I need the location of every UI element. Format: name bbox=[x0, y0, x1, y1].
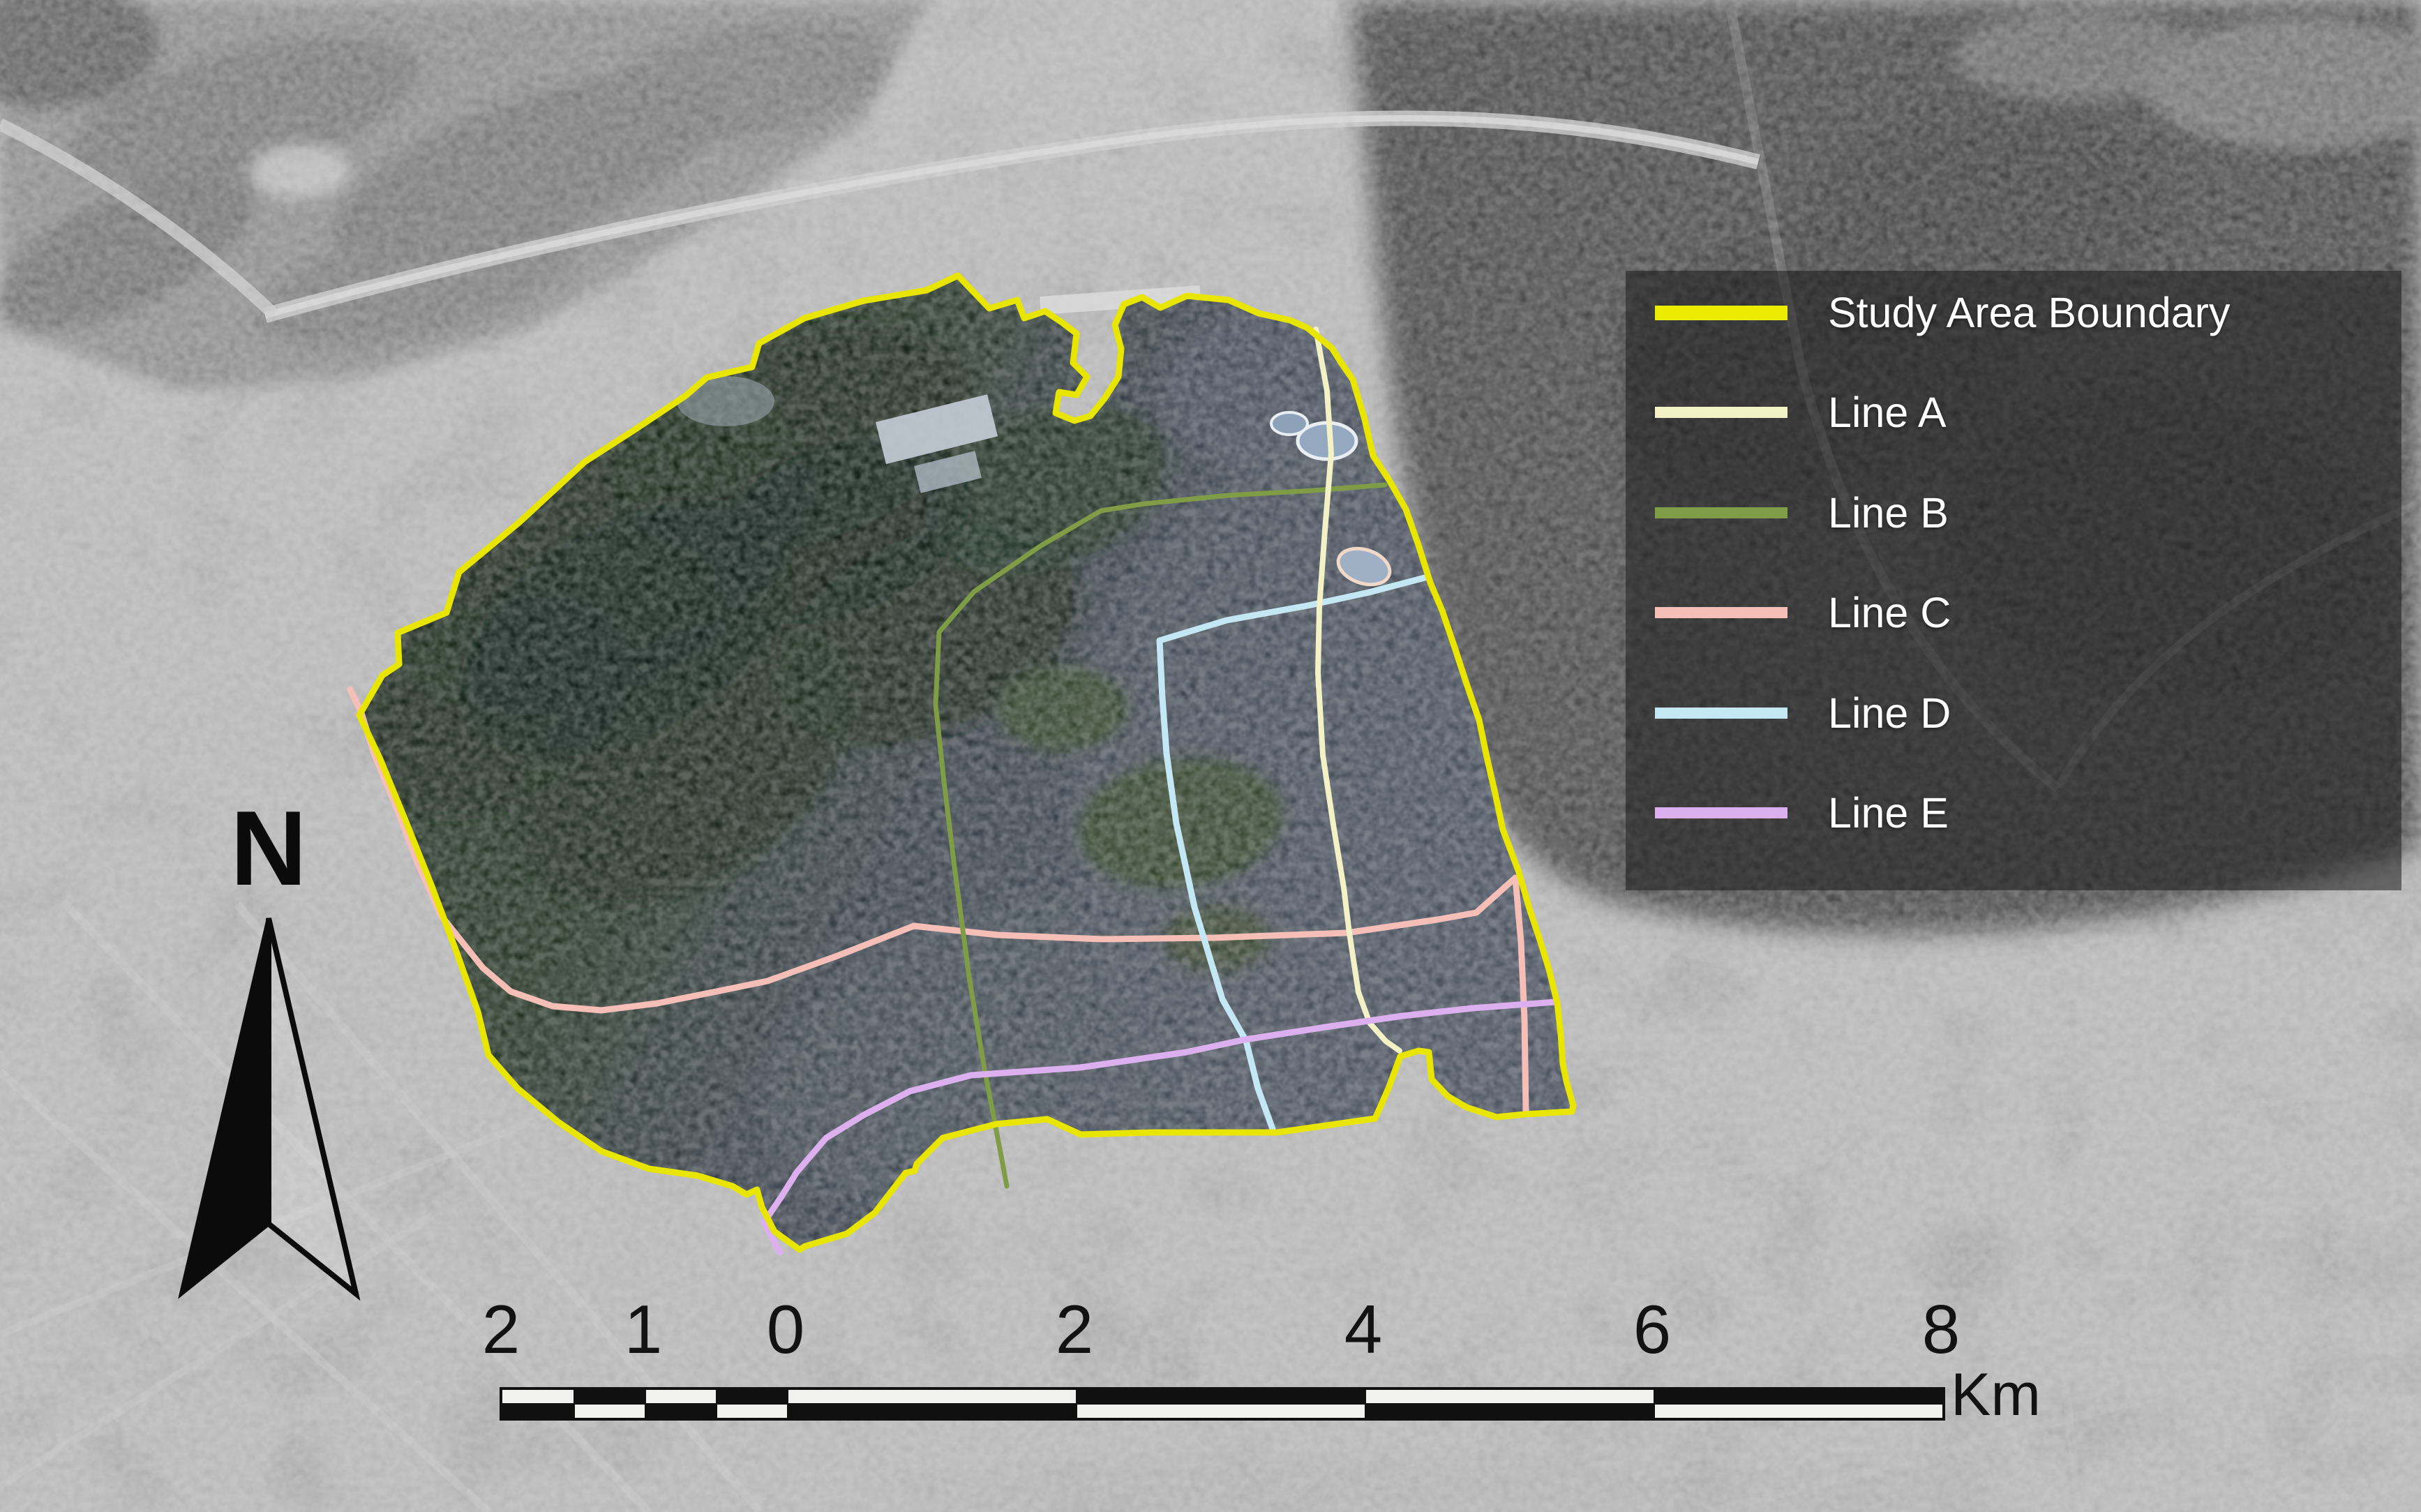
legend-label: Line B bbox=[1828, 492, 1949, 534]
legend-item-line-a: Line A bbox=[1655, 390, 1947, 435]
legend-label: Study Area Boundary bbox=[1828, 292, 2231, 334]
legend: Study Area Boundary Line A Line B Line C… bbox=[1626, 271, 2401, 890]
line-d-swatch-icon bbox=[1655, 708, 1787, 719]
north-arrow: N bbox=[174, 795, 363, 1312]
north-label: N bbox=[174, 795, 363, 901]
stadium-oval bbox=[1271, 412, 1307, 435]
legend-item-line-e: Line E bbox=[1655, 791, 1949, 835]
line-e-swatch-icon bbox=[1655, 807, 1787, 818]
line-a-swatch-icon bbox=[1655, 407, 1787, 418]
legend-item-line-c: Line C bbox=[1655, 590, 1951, 635]
line-c-swatch-icon bbox=[1655, 607, 1787, 618]
legend-label: Line D bbox=[1828, 692, 1951, 735]
map-figure: Study Area Boundary Line A Line B Line C… bbox=[0, 0, 2421, 1512]
legend-label: Line A bbox=[1828, 391, 1947, 434]
legend-item-line-d: Line D bbox=[1655, 691, 1951, 735]
legend-label: Line E bbox=[1828, 792, 1949, 834]
legend-item-line-b: Line B bbox=[1655, 491, 1949, 535]
legend-label: Line C bbox=[1828, 592, 1951, 634]
north-arrow-icon bbox=[174, 911, 363, 1302]
boundary-swatch-icon bbox=[1655, 306, 1787, 320]
line-b-swatch-icon bbox=[1655, 507, 1787, 518]
legend-item-boundary: Study Area Boundary bbox=[1655, 290, 2231, 335]
